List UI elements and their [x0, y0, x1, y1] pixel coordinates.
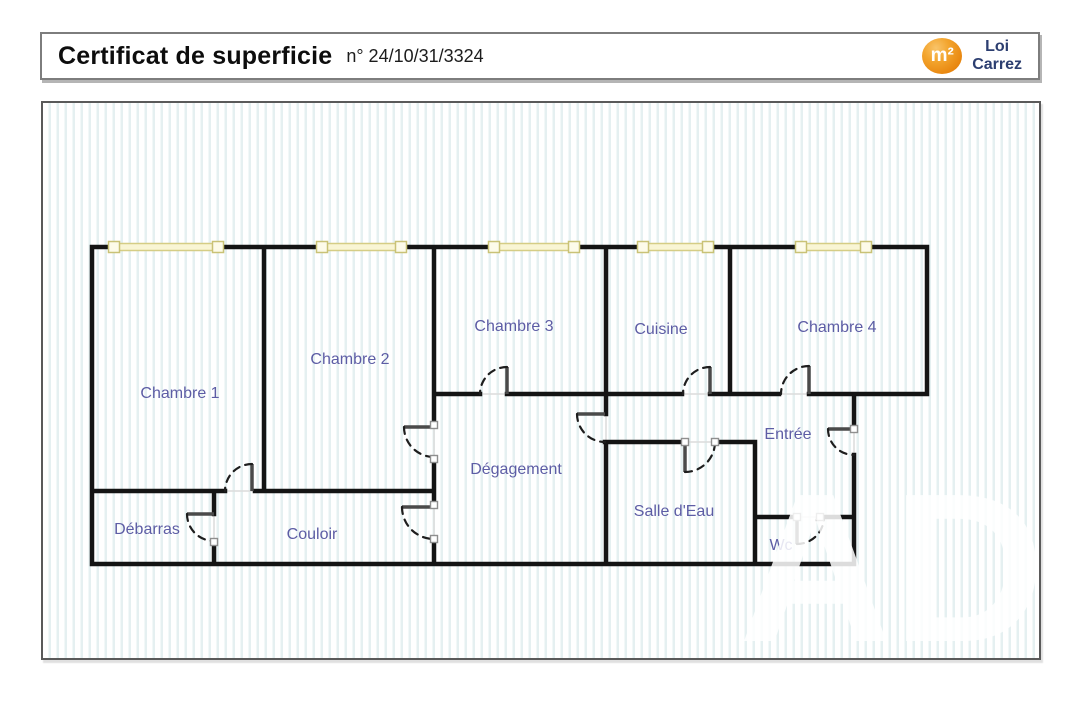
- document-title: Certificat de superficie: [58, 42, 332, 71]
- room-label-degagement: Dégagement: [470, 461, 562, 478]
- room-label-chambre-3: Chambre 3: [474, 318, 553, 335]
- loi-carrez-line1: Loi: [972, 38, 1022, 56]
- loi-carrez-logo: m² Loi Carrez: [922, 38, 1022, 75]
- room-label-couloir: Couloir: [287, 526, 338, 543]
- room-label-wc: Wc: [769, 537, 792, 554]
- room-label-chambre-2: Chambre 2: [310, 351, 389, 368]
- room-label-chambre-1: Chambre 1: [140, 385, 219, 402]
- floor-plan-svg: Chambre 1 Chambre 2 Chambre 3 Cuisine Ch…: [43, 103, 1039, 658]
- room-label-chambre-4: Chambre 4: [797, 319, 876, 336]
- m2-badge-icon: m²: [922, 38, 962, 74]
- loi-carrez-line2: Carrez: [972, 56, 1022, 74]
- m2-badge-text: m²: [931, 45, 954, 67]
- room-label-cuisine: Cuisine: [634, 321, 687, 338]
- room-label-salle-d-eau: Salle d'Eau: [634, 503, 714, 520]
- document-number: n° 24/10/31/3324: [346, 46, 483, 67]
- room-label-debarras: Débarras: [114, 521, 180, 538]
- loi-carrez-label: Loi Carrez: [972, 38, 1022, 75]
- header-bar: Certificat de superficie n° 24/10/31/332…: [40, 32, 1040, 80]
- floor-plan-panel: Chambre 1 Chambre 2 Chambre 3 Cuisine Ch…: [41, 101, 1041, 660]
- room-label-entree: Entrée: [764, 426, 811, 443]
